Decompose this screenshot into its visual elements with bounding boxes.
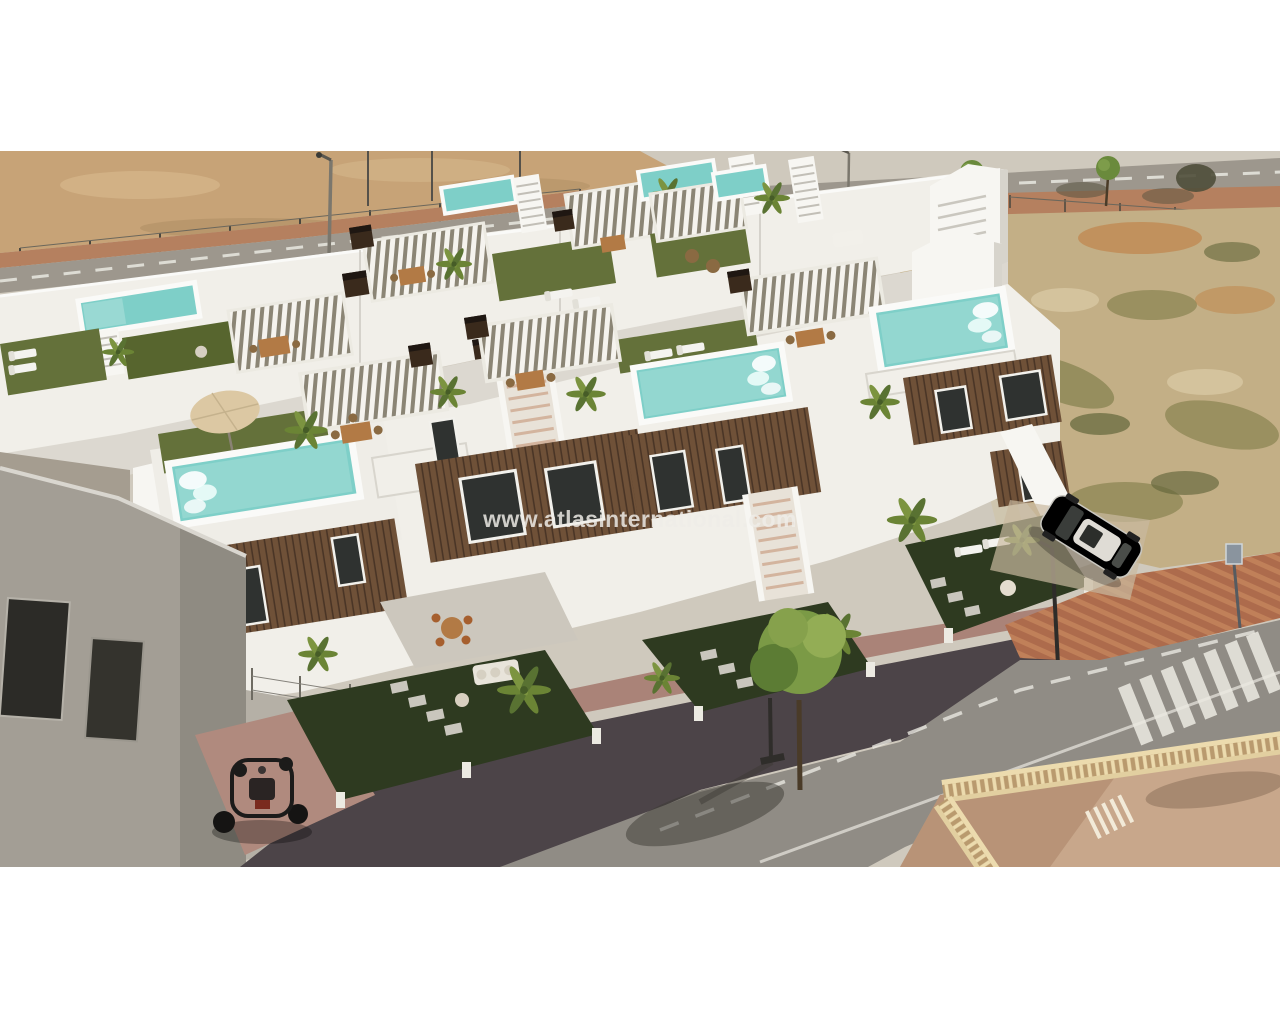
letterboxed-photo-page: www.atlasinternational.com xyxy=(0,0,1280,1024)
render-scene: www.atlasinternational.com xyxy=(0,151,1280,867)
aerial-render-photo: www.atlasinternational.com xyxy=(0,151,1280,867)
watermark-text: www.atlasinternational.com xyxy=(482,506,797,532)
